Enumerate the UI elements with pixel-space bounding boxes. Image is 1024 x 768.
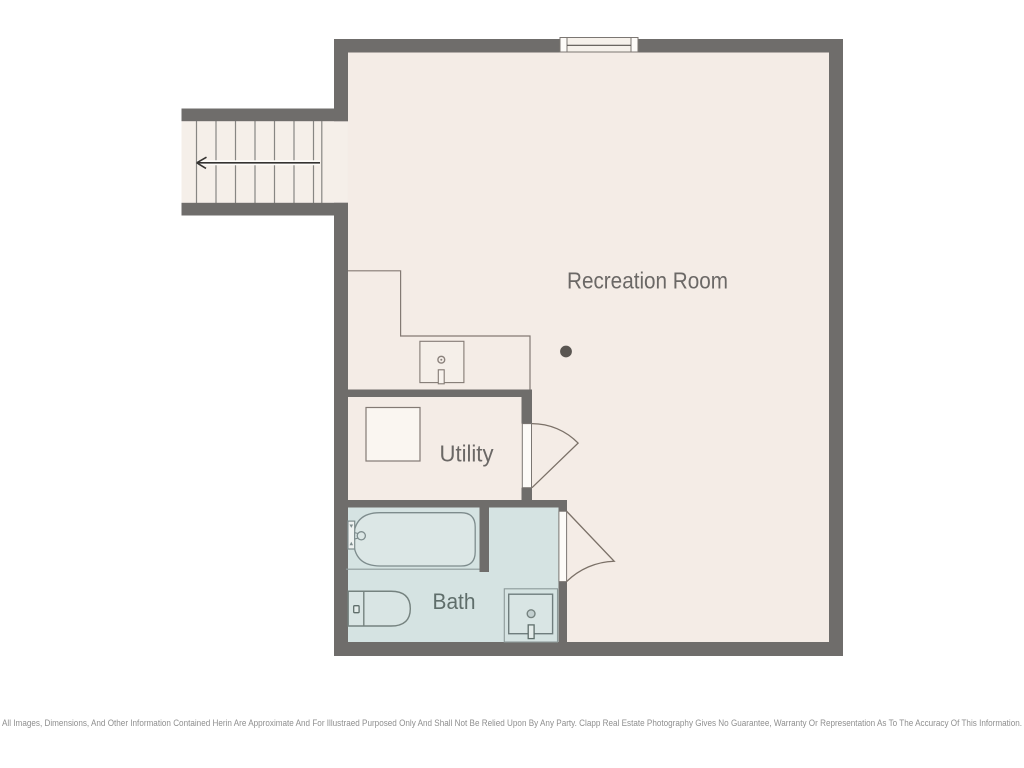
svg-text:Bath: Bath bbox=[433, 589, 476, 614]
svg-text:Recreation Room: Recreation Room bbox=[567, 268, 728, 294]
svg-text:All Images, Dimensions, And Ot: All Images, Dimensions, And Other Inform… bbox=[2, 718, 1022, 728]
svg-text:Utility: Utility bbox=[440, 441, 494, 467]
